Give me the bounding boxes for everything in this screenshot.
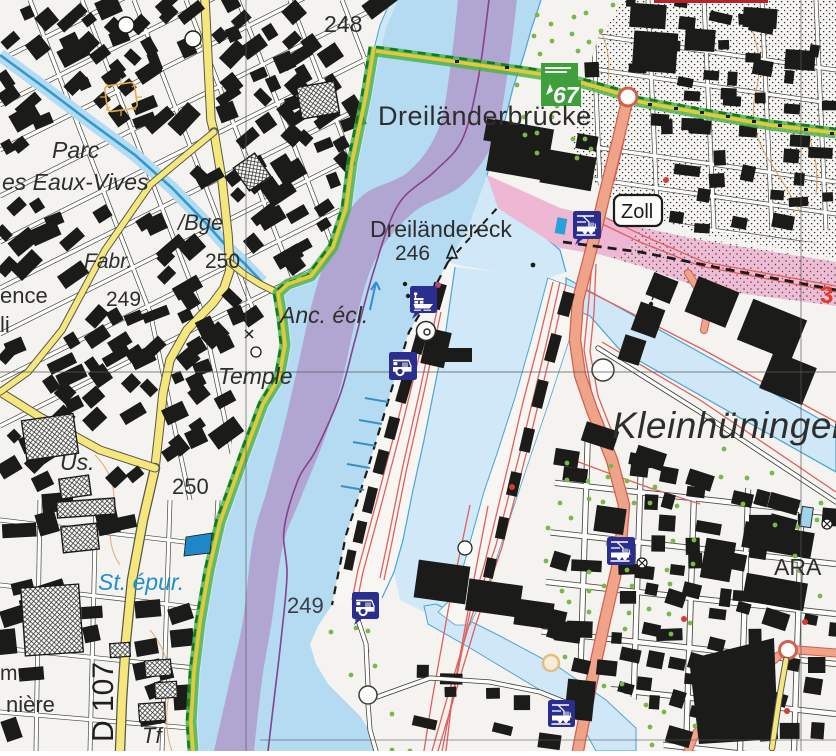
svg-text:Tf: Tf: [142, 723, 164, 748]
svg-text:ARA: ARA: [774, 554, 822, 580]
svg-text:Dreiländereck: Dreiländereck: [370, 216, 512, 242]
svg-text:249: 249: [287, 593, 324, 618]
svg-text:Fabr.: Fabr.: [84, 250, 132, 273]
svg-text:/Bge: /Bge: [176, 210, 223, 235]
svg-text:m.: m.: [0, 662, 23, 685]
svg-text:249: 249: [106, 288, 141, 311]
svg-text:Zoll: Zoll: [621, 201, 653, 223]
svg-text:Parc: Parc: [52, 137, 100, 163]
svg-text:250: 250: [205, 250, 240, 273]
svg-text:Dreiländerbrücke: Dreiländerbrücke: [378, 101, 592, 131]
svg-text:3: 3: [820, 282, 833, 309]
svg-text:nière: nière: [6, 692, 55, 717]
svg-text:Kleinhüningen: Kleinhüningen: [612, 405, 836, 446]
svg-text:ence: ence: [0, 283, 48, 308]
svg-text:248: 248: [324, 11, 362, 37]
svg-text:Anc. écl.: Anc. écl.: [278, 302, 368, 328]
svg-text:es Eaux-Vives: es Eaux-Vives: [2, 169, 149, 195]
svg-text:246: 246: [395, 242, 430, 265]
svg-text:Temple: Temple: [218, 363, 293, 389]
svg-text:Us.: Us.: [60, 449, 95, 475]
svg-text:D 107: D 107: [87, 662, 120, 742]
svg-text:St. épur.: St. épur.: [98, 569, 184, 595]
svg-text:250: 250: [172, 474, 209, 499]
svg-text:li: li: [0, 312, 10, 337]
